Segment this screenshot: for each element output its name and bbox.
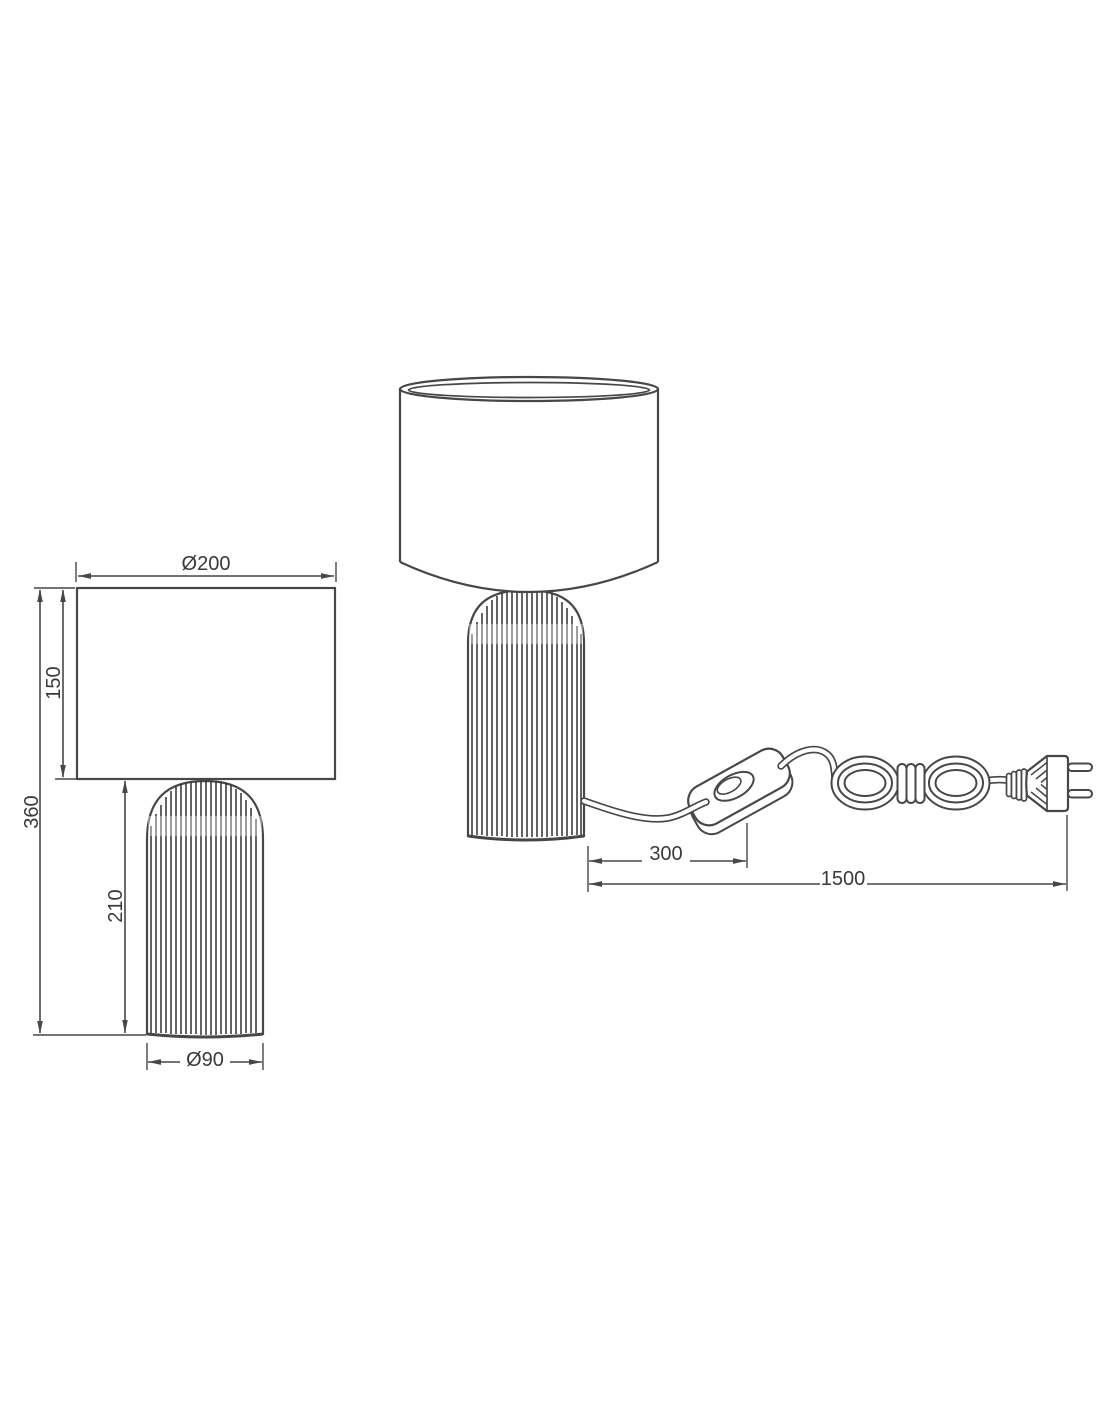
- dim-arrow: [122, 1020, 128, 1033]
- dim-arrow: [249, 1059, 262, 1065]
- dim-arrow: [589, 858, 602, 864]
- dim-arrow: [1053, 881, 1066, 887]
- coil-wrap-band: [907, 764, 916, 803]
- power-plug: [1007, 756, 1093, 811]
- dim-label-shade-diameter: Ø200: [182, 553, 231, 575]
- plug-pin-bottom: [1068, 790, 1092, 798]
- technical-drawing-page: Ø200 150 360 210: [0, 0, 1100, 1422]
- lamp-dimension-drawing: Ø200 150 360 210: [0, 0, 1100, 1422]
- dim-switch-distance: 300: [588, 823, 747, 892]
- dim-arrow: [60, 765, 66, 778]
- dim-arrow: [37, 589, 43, 602]
- inline-switch: [681, 743, 800, 840]
- dim-label-total-height: 360: [21, 795, 43, 828]
- dim-arrow: [733, 858, 746, 864]
- dim-arrow: [148, 1059, 161, 1065]
- dim-label-base-height: 210: [105, 889, 127, 922]
- plug-pin-top: [1068, 764, 1092, 772]
- dim-shade-diameter: Ø200: [76, 553, 336, 582]
- dim-arrow: [37, 1021, 43, 1034]
- coil-left-loop-inner: [845, 770, 886, 796]
- coil-wrap-band: [916, 764, 925, 803]
- coil-wrap-band: [898, 764, 907, 803]
- dim-label-base-diameter: Ø90: [186, 1049, 224, 1071]
- cable-coil: [832, 757, 990, 810]
- dim-base-height: 210: [105, 780, 128, 1033]
- dim-arrow: [321, 573, 334, 579]
- front-view: Ø200 150 360 210: [21, 553, 336, 1071]
- lamp-shade-3d: [400, 377, 658, 593]
- dim-label-cable-length: 1500: [821, 868, 866, 890]
- dim-arrow: [60, 589, 66, 602]
- dim-base-diameter: Ø90: [147, 1043, 263, 1071]
- lamp-base-3d: [468, 590, 584, 840]
- dim-label-shade-height: 150: [43, 666, 65, 699]
- lamp-base-front-highlight-band: [148, 816, 262, 836]
- dim-arrow: [589, 881, 602, 887]
- lamp-shade-3d-body-fill: [400, 389, 658, 593]
- lamp-shade-front: [77, 588, 335, 779]
- dim-arrow: [122, 780, 128, 793]
- coil-right-loop-inner: [936, 770, 977, 796]
- lamp-base-3d-highlight-band: [469, 624, 583, 644]
- dim-arrow: [78, 573, 91, 579]
- lamp-base-front: [147, 781, 263, 1037]
- side-view: 300 1500: [400, 377, 1092, 892]
- dim-label-switch-distance: 300: [649, 843, 682, 865]
